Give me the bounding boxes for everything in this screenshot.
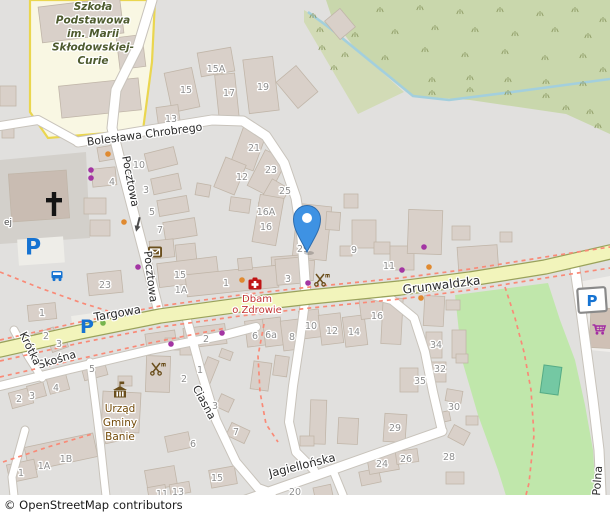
housenumber-label: 3	[143, 185, 149, 196]
bus-wheel	[59, 278, 62, 281]
parking-letter: P	[587, 292, 598, 310]
housenumber-label: 7	[233, 427, 239, 438]
housenumber-label: 15	[174, 270, 186, 281]
marker-hole	[302, 213, 312, 223]
poi-label-line: Skłodowskiej-	[52, 42, 134, 54]
housenumber-label: 14	[348, 327, 360, 338]
building	[500, 232, 512, 242]
poi-label-line: im. Marii	[67, 28, 119, 40]
housenumber-label: 25	[279, 186, 291, 197]
parking-sign-icon: P	[577, 287, 607, 313]
building	[84, 198, 106, 214]
housenumber-label: 13	[165, 114, 177, 125]
bus-windows	[53, 272, 61, 275]
marker-shadow	[304, 251, 314, 255]
purple-poi-dot	[421, 244, 427, 250]
poi-label-line: Szkoła	[74, 1, 113, 13]
osm-attribution-link[interactable]: © OpenStreetMap contributors	[4, 498, 183, 512]
purple-poi-dot	[135, 264, 141, 270]
housenumber-label: 5	[149, 207, 155, 218]
orange-poi-dot	[121, 219, 127, 225]
building	[352, 220, 376, 248]
column	[116, 392, 118, 397]
housenumber-label: 3	[285, 274, 291, 285]
housenumber-label: 3	[212, 401, 218, 412]
housenumber-label: 6	[252, 331, 258, 342]
building	[456, 354, 468, 363]
housenumber-label: 6a	[265, 330, 277, 341]
housenumber-label: 10	[133, 160, 145, 171]
parking-icon: P	[25, 236, 41, 261]
housenumber-label: 17	[223, 88, 235, 99]
comb	[162, 364, 166, 367]
building	[446, 472, 464, 484]
bus-wheel	[53, 278, 56, 281]
flag	[120, 382, 124, 385]
housenumber-label: 35	[414, 376, 426, 387]
building	[344, 194, 358, 208]
column	[122, 392, 124, 397]
housenumber-label: 4	[53, 383, 59, 394]
housenumber-label: 2	[43, 331, 49, 342]
column	[119, 392, 121, 397]
building	[423, 295, 445, 326]
building	[446, 300, 460, 310]
housenumber-label: 3	[29, 391, 35, 402]
poi-label: UrządGminyBanie	[103, 403, 137, 443]
housenumber-label: 10	[305, 321, 317, 332]
building	[0, 86, 16, 106]
cross-h	[46, 198, 62, 202]
housenumber-label: 15A	[207, 64, 226, 75]
housenumber-label: 21	[248, 143, 260, 154]
housenumber-label: 2	[181, 374, 187, 385]
housenumber-label: 12	[326, 326, 338, 337]
sports-pitch	[540, 365, 562, 395]
building	[237, 257, 252, 270]
building	[300, 436, 314, 446]
comb	[326, 275, 330, 278]
parking-icon: P	[80, 316, 94, 338]
poi-label-line: Banie	[105, 431, 135, 443]
orange-poi-dot	[105, 151, 111, 157]
housenumber-label: 3	[56, 339, 62, 350]
housenumber-label: 7	[157, 225, 163, 236]
housenumber-label: 2	[16, 394, 22, 405]
poi-label-line: Gminy	[103, 417, 137, 429]
housenumber-label: 23	[265, 165, 277, 176]
housenumber-label: 24	[376, 459, 388, 470]
building	[8, 170, 69, 222]
housenumber-label: 11	[383, 261, 395, 272]
building	[337, 417, 358, 444]
building	[229, 197, 251, 214]
housenumber-label: 34	[430, 340, 442, 351]
poi-label-line: Podstawowa	[56, 15, 130, 27]
building	[466, 416, 478, 425]
parking-letter: P	[25, 236, 41, 261]
orange-poi-dot	[418, 295, 424, 301]
building	[273, 355, 290, 377]
building	[250, 361, 272, 391]
map-canvas[interactable]: PPPBolesława ChrobregoPocztowaPocztowaTa…	[0, 0, 610, 515]
poi-label-line: Dbam	[242, 294, 272, 305]
purple-poi-dot	[219, 330, 225, 336]
cross-v	[52, 192, 56, 216]
orange-poi-dot	[239, 277, 245, 283]
building	[195, 183, 211, 197]
housenumber-label: 4	[109, 177, 115, 188]
street-name-label: Polna	[590, 465, 605, 496]
parking-letter: P	[80, 316, 94, 338]
building	[90, 220, 110, 236]
housenumber-label: 1A	[38, 461, 51, 472]
housenumber-label: 9	[351, 245, 357, 256]
building	[452, 226, 470, 240]
housenumber-label: 1	[223, 278, 229, 289]
building	[325, 212, 340, 231]
purple-poi-dot	[88, 175, 94, 181]
purple-poi-dot	[305, 280, 311, 286]
housenumber-label: 5	[89, 364, 95, 375]
map-attribution: © OpenStreetMap contributors	[0, 495, 610, 515]
housenumber-label: 29	[389, 423, 401, 434]
housenumber-label: 28	[443, 452, 455, 463]
cart-wheel	[596, 332, 599, 335]
purple-poi-dot	[399, 267, 405, 273]
housenumber-label: 12	[236, 172, 248, 183]
housenumber-label: 16	[260, 222, 272, 233]
cross-h	[252, 283, 259, 286]
housenumber-label: 32	[434, 364, 446, 375]
orange-poi-dot	[426, 264, 432, 270]
housenumber-label: 30	[448, 402, 460, 413]
map-viewport[interactable]: PPPBolesława ChrobregoPocztowaPocztowaTa…	[0, 0, 610, 515]
housenumber-label: 16	[371, 311, 383, 322]
housenumber-label: 16A	[257, 207, 276, 218]
housenumber-label: 15	[211, 473, 223, 484]
housenumber-label: 6	[190, 439, 196, 450]
housenumber-label: 8	[289, 332, 295, 343]
poi-label-line: ej	[4, 218, 12, 228]
building	[374, 242, 390, 254]
housenumber-label: 15	[180, 85, 192, 96]
housenumber-label: 2	[203, 334, 209, 345]
housenumber-label: 1	[39, 308, 45, 319]
housenumber-label: 1	[197, 365, 203, 376]
poi-label-line: Urząd	[105, 403, 136, 415]
housenumber-label: 23	[99, 280, 111, 291]
purple-poi-dot	[88, 167, 94, 173]
purple-poi-dot	[168, 341, 174, 347]
poi-label-line: Curie	[77, 55, 108, 67]
housenumber-label: 26	[400, 454, 412, 465]
housenumber-label: 19	[257, 82, 269, 93]
poi-label: ej	[4, 218, 12, 228]
cart-wheel	[601, 332, 604, 335]
housenumber-label: 1A	[175, 285, 188, 296]
poi-label-line: o Zdrowie	[232, 305, 282, 316]
housenumber-label: 1B	[60, 454, 73, 465]
housenumber-label: 1	[18, 468, 24, 479]
